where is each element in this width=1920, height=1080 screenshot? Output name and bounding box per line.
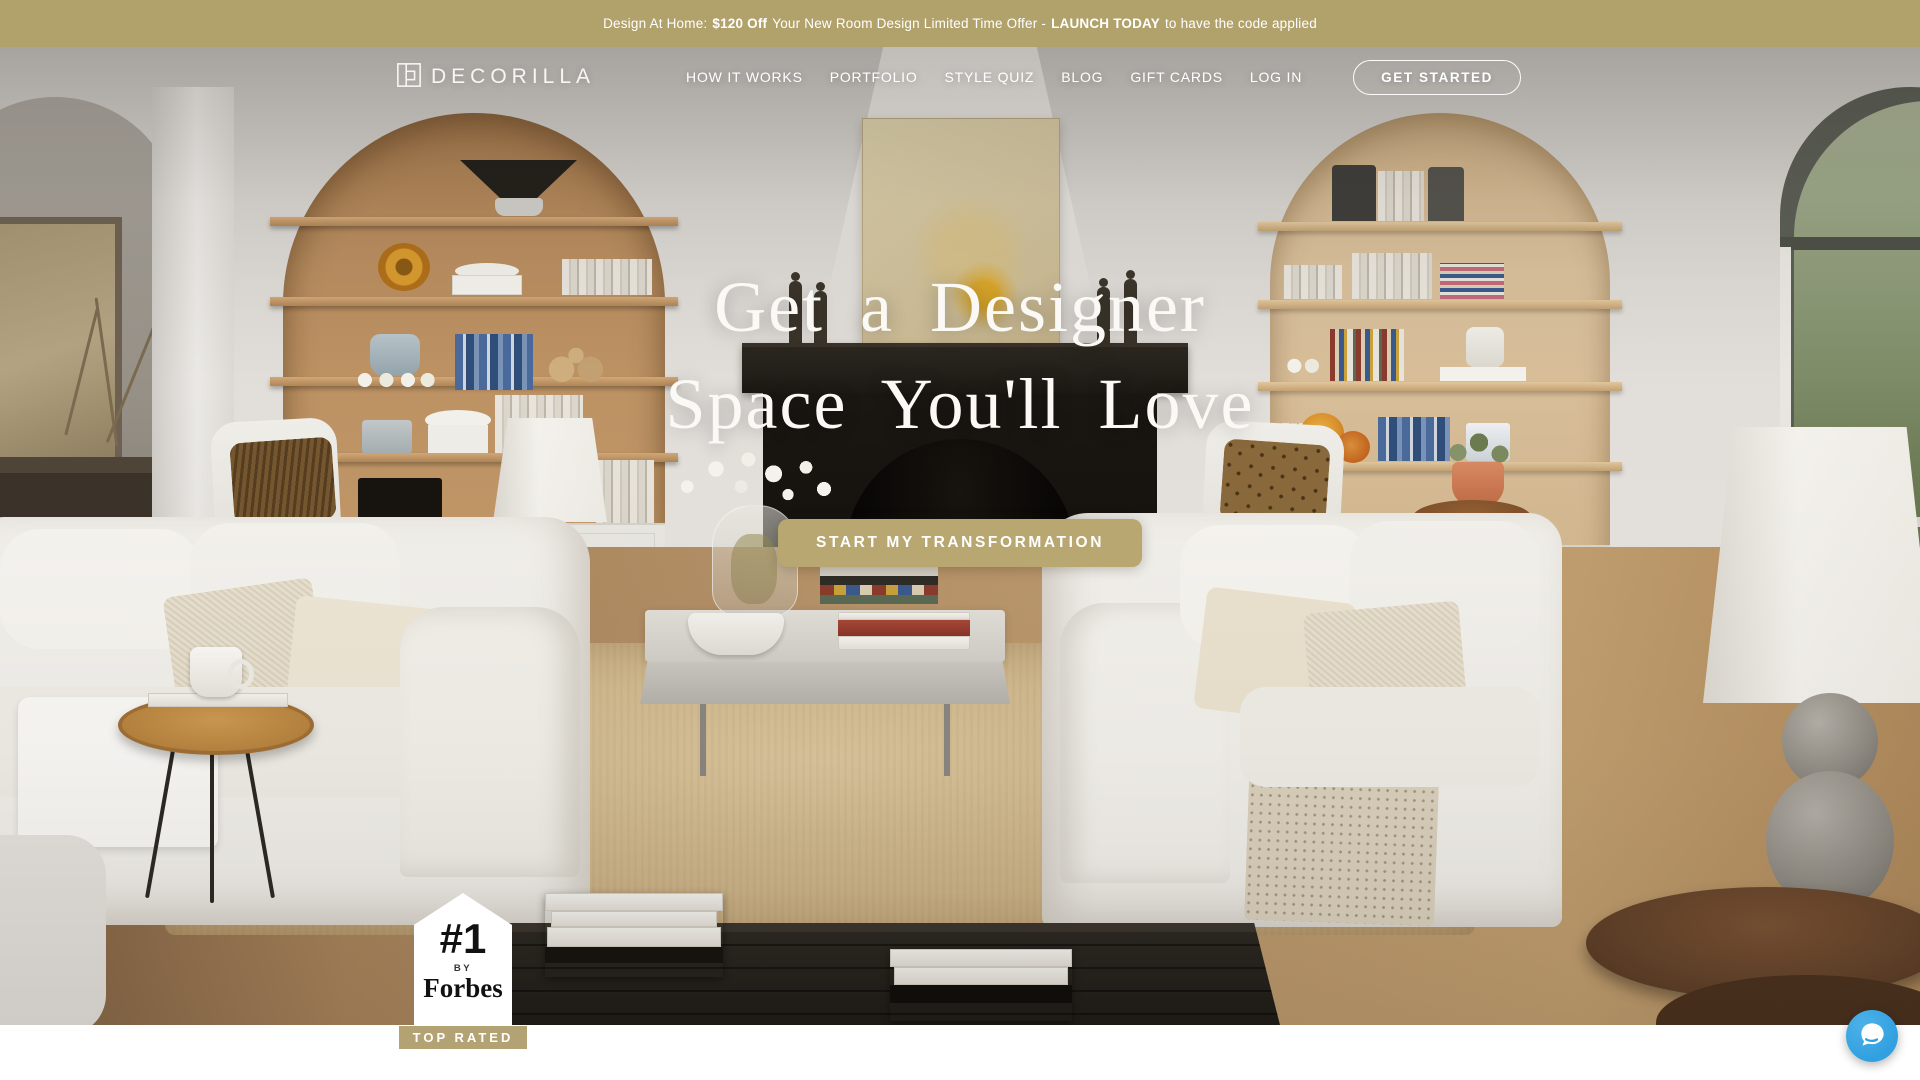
coffee-table-leg bbox=[700, 704, 706, 776]
knot-sculpture bbox=[540, 344, 612, 390]
bowl-pedestal bbox=[495, 198, 543, 216]
amber-ring-decor bbox=[378, 243, 430, 291]
white-book-slab bbox=[1440, 367, 1526, 381]
nav-blog[interactable]: BLOG bbox=[1061, 69, 1103, 85]
main-nav: HOW IT WORKS PORTFOLIO STYLE QUIZ BLOG G… bbox=[686, 60, 1521, 95]
book-row bbox=[1352, 253, 1432, 299]
book bbox=[894, 967, 1068, 985]
shelf bbox=[1258, 300, 1622, 309]
promo-banner[interactable]: Design At Home: $120 Off Your New Room D… bbox=[0, 0, 1920, 47]
book bbox=[551, 911, 717, 927]
cutting-board-decor bbox=[1428, 167, 1464, 221]
colorful-book-row bbox=[1330, 329, 1404, 381]
coffee-table-leg bbox=[944, 704, 950, 776]
book bbox=[890, 949, 1072, 967]
nav-gift-cards[interactable]: GIFT CARDS bbox=[1130, 69, 1223, 85]
shelf bbox=[1258, 382, 1622, 391]
white-ball-decor bbox=[352, 369, 438, 391]
table-lamp-shade bbox=[493, 418, 607, 522]
start-transformation-button[interactable]: START MY TRANSFORMATION bbox=[778, 519, 1142, 567]
decorilla-monogram-icon bbox=[396, 62, 422, 93]
sofa-seat-cushion bbox=[1240, 687, 1540, 787]
white-plinth bbox=[428, 425, 488, 453]
dark-book bbox=[545, 947, 723, 963]
shelf bbox=[270, 217, 678, 226]
figurine-statue bbox=[789, 281, 802, 345]
shelf bbox=[1258, 222, 1622, 231]
white-book-stack bbox=[1284, 265, 1342, 299]
logo-wordmark: DECORILLA bbox=[431, 65, 595, 89]
sofa-arm bbox=[400, 607, 580, 877]
book bbox=[820, 576, 938, 585]
top-rated-ribbon: TOP RATED bbox=[399, 1026, 527, 1049]
coffee-table-edge bbox=[640, 662, 1010, 704]
book bbox=[820, 595, 938, 604]
site-header: DECORILLA HOW IT WORKS PORTFOLIO STYLE Q… bbox=[0, 47, 1920, 107]
badge-rank-number: #1 bbox=[440, 919, 487, 959]
promo-text: Your New Room Design Limited Time Offer … bbox=[772, 16, 1046, 31]
nav-style-quiz[interactable]: STYLE QUIZ bbox=[945, 69, 1035, 85]
blue-book-stack bbox=[455, 334, 533, 390]
figurine-statue bbox=[814, 291, 827, 345]
decorilla-logo[interactable]: DECORILLA bbox=[396, 62, 595, 93]
get-started-button[interactable]: GET STARTED bbox=[1353, 60, 1521, 95]
tray-table-leg bbox=[210, 753, 214, 903]
promo-text: Design At Home: bbox=[603, 16, 707, 31]
book-stack bbox=[1378, 171, 1424, 221]
chat-launcher-button[interactable] bbox=[1846, 1010, 1898, 1062]
nav-log-in[interactable]: LOG IN bbox=[1250, 69, 1302, 85]
colorful-book-stack bbox=[1440, 263, 1504, 299]
book bbox=[547, 927, 721, 947]
fireplace-mantel bbox=[742, 343, 1188, 393]
header-inner: DECORILLA HOW IT WORKS PORTFOLIO STYLE Q… bbox=[396, 60, 1521, 95]
badge-source-name: Forbes bbox=[423, 974, 502, 1002]
decorilla-landing-page: Design At Home: $120 Off Your New Room D… bbox=[0, 0, 1920, 1080]
cutting-board-decor bbox=[1332, 165, 1376, 221]
foreground-book-stack bbox=[545, 893, 723, 977]
dark-book bbox=[890, 985, 1072, 1003]
promo-code: LAUNCH TODAY bbox=[1051, 16, 1160, 31]
figurine-statue bbox=[1097, 287, 1110, 345]
hero-section: Get a Designer Space You'll Love START M… bbox=[0, 47, 1920, 1025]
accent-pillow bbox=[229, 437, 336, 526]
chat-bubble-icon bbox=[1855, 1018, 1889, 1055]
book bbox=[545, 893, 723, 911]
window-lintel bbox=[1780, 237, 1920, 250]
book bbox=[820, 585, 938, 595]
white-box-decor bbox=[452, 275, 522, 295]
book bbox=[838, 636, 970, 650]
red-book bbox=[838, 620, 970, 636]
coffee-table-books bbox=[838, 612, 970, 654]
armchair-corner bbox=[0, 835, 106, 1025]
nav-portfolio[interactable]: PORTFOLIO bbox=[830, 69, 918, 85]
promo-offer-amount: $120 Off bbox=[712, 16, 767, 31]
book bbox=[820, 568, 938, 576]
foreground-book-stack bbox=[890, 949, 1072, 1021]
white-gourd-vases bbox=[1282, 343, 1326, 381]
mantel-artwork bbox=[862, 118, 1060, 346]
white-mug bbox=[190, 647, 242, 697]
book-stack bbox=[562, 259, 652, 295]
figurine-statue bbox=[1124, 279, 1137, 345]
floor-lamp-shade bbox=[1703, 427, 1920, 703]
white-cylinder-vase bbox=[1466, 327, 1504, 367]
shelf bbox=[270, 297, 678, 306]
book bbox=[838, 612, 970, 620]
promo-text: to have the code applied bbox=[1165, 16, 1317, 31]
nav-how-it-works[interactable]: HOW IT WORKS bbox=[686, 69, 803, 85]
gray-box-decor bbox=[362, 420, 412, 454]
